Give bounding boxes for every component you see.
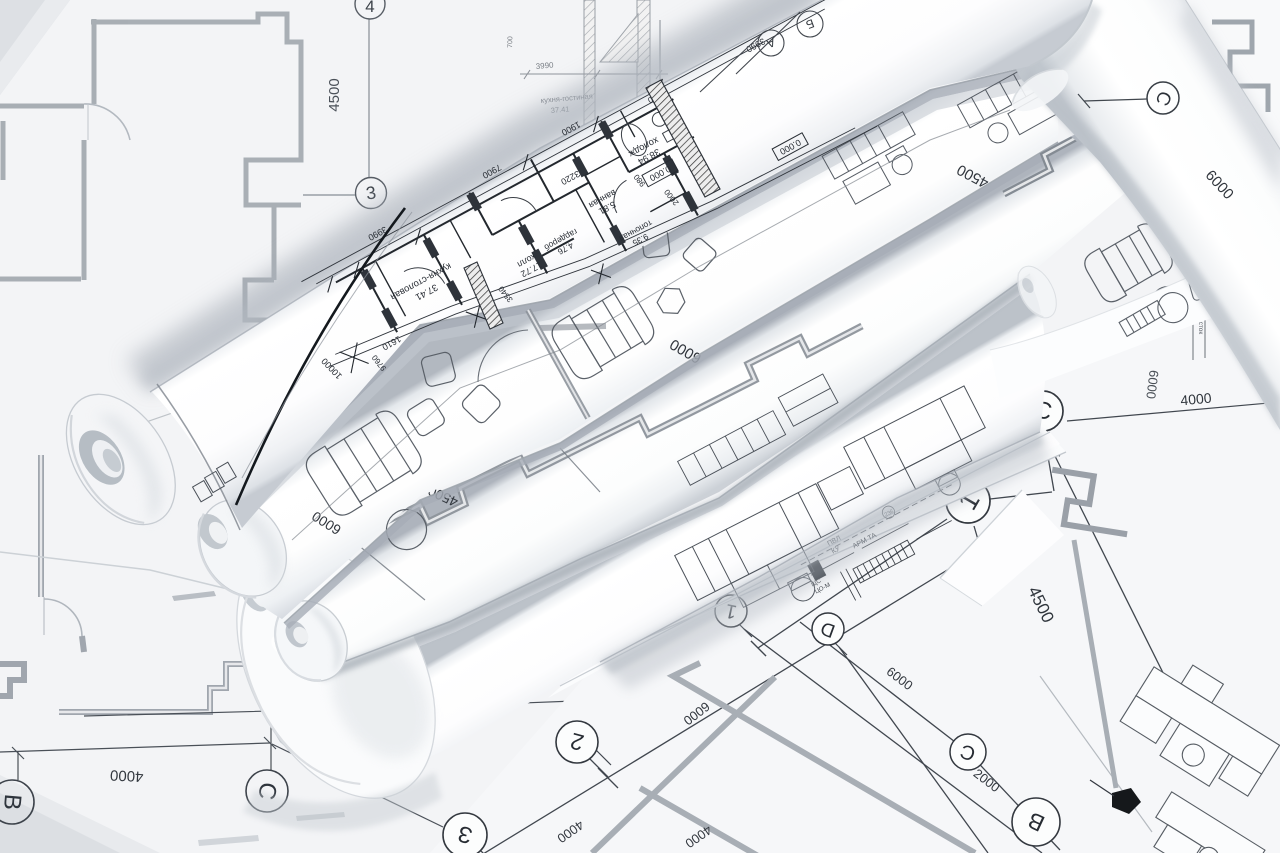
svg-text:4000: 4000 [110, 766, 144, 785]
svg-text:4500: 4500 [326, 78, 343, 111]
svg-text:700: 700 [507, 36, 514, 48]
svg-text:4: 4 [365, 0, 374, 16]
svg-text:B: B [0, 793, 26, 811]
svg-text:3990: 3990 [535, 60, 554, 71]
svg-text:4000: 4000 [1180, 390, 1213, 409]
